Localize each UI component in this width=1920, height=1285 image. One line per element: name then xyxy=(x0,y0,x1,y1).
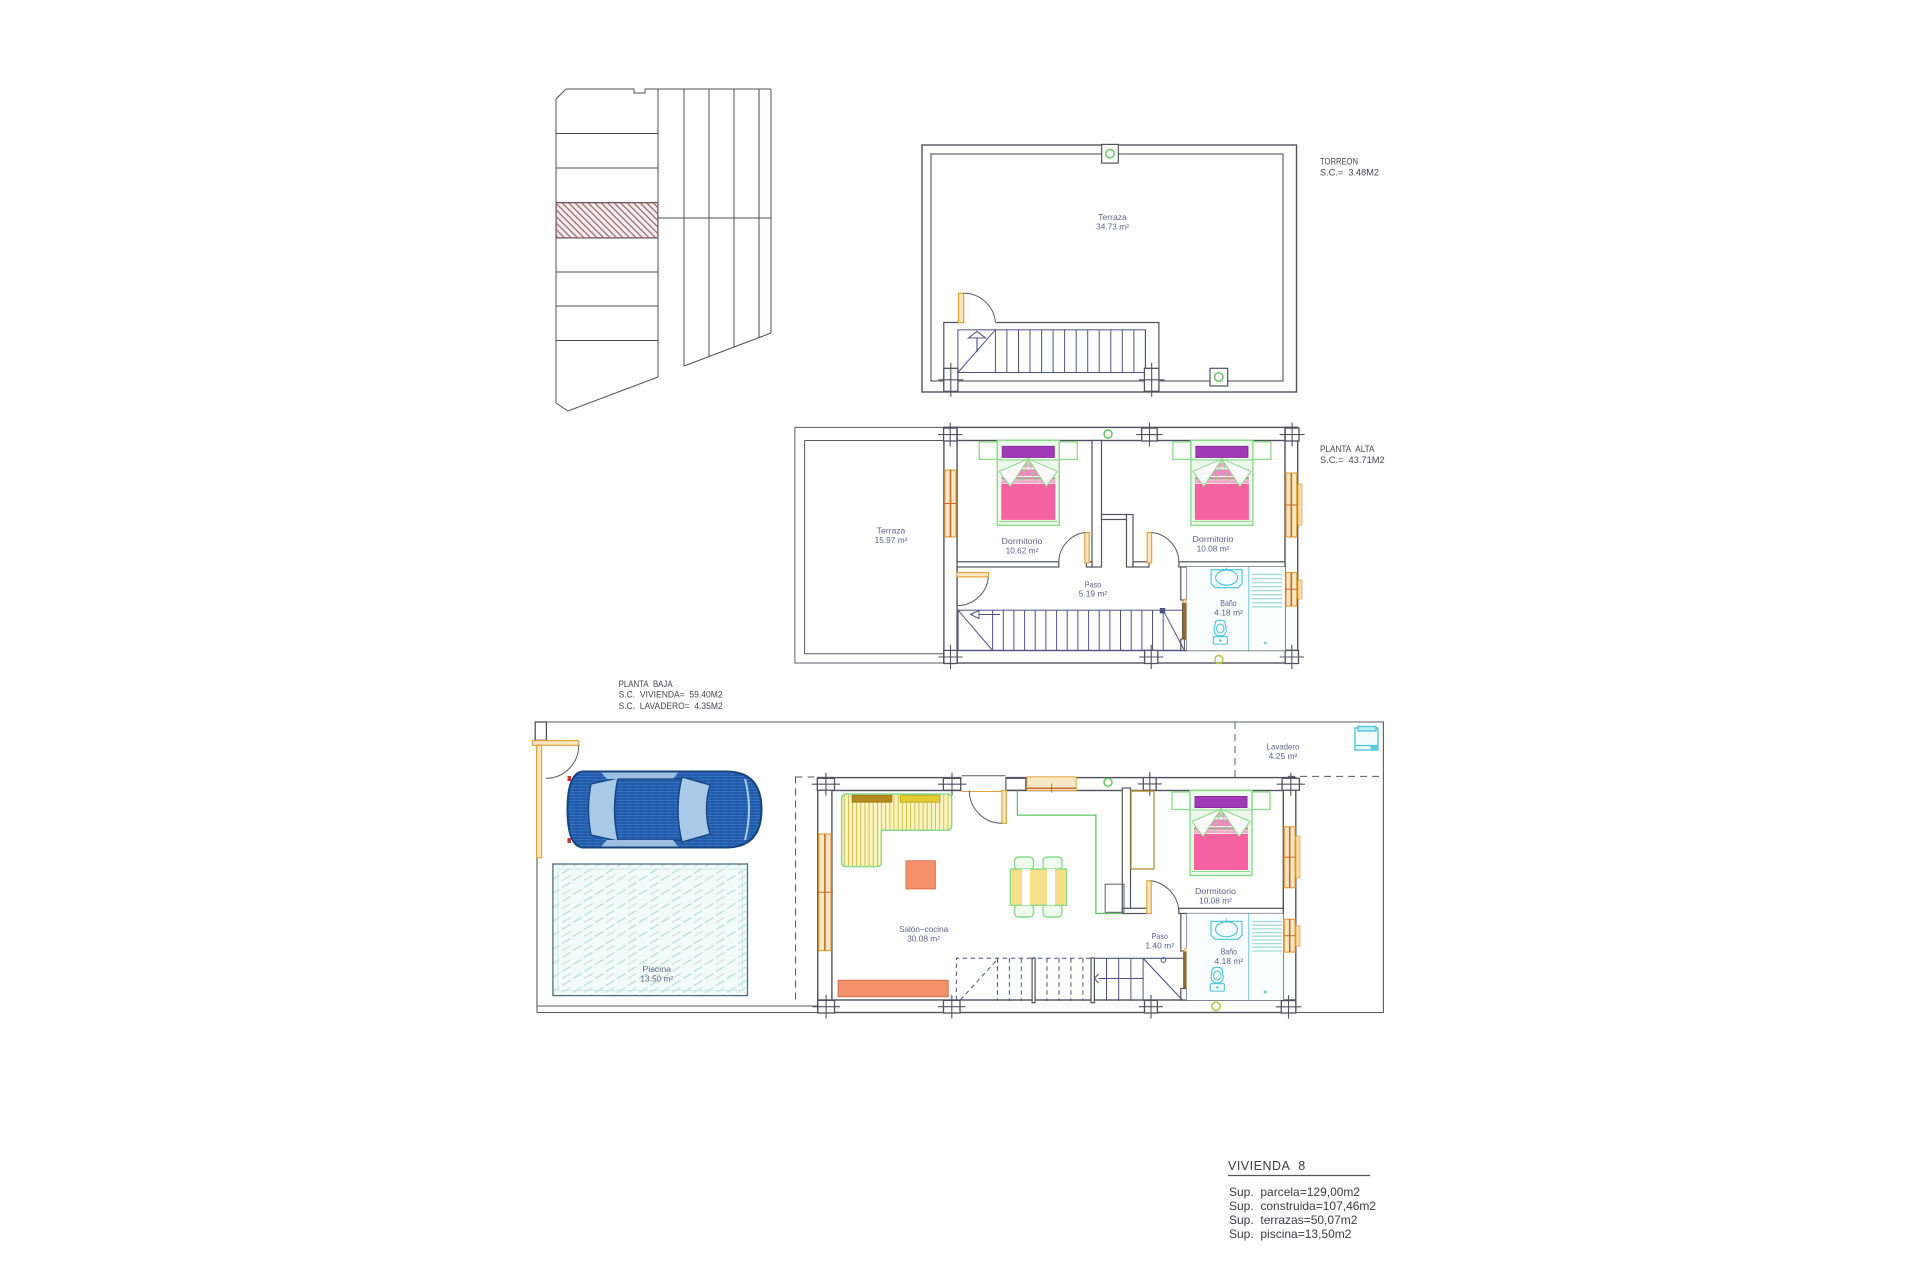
svg-text:PLANTA BAJA: PLANTA BAJA xyxy=(619,678,674,689)
svg-text:PLANTA ALTA: PLANTA ALTA xyxy=(1320,443,1375,454)
svg-text:Sup. construida=107,46m2: Sup. construida=107,46m2 xyxy=(1229,1199,1376,1213)
svg-text:10.62 m²: 10.62 m² xyxy=(1006,545,1039,555)
svg-text:S.C.= 43.71M2: S.C.= 43.71M2 xyxy=(1320,454,1385,465)
svg-text:34.73 m²: 34.73 m² xyxy=(1096,221,1129,231)
svg-text:TORREON: TORREON xyxy=(1320,155,1358,166)
svg-text:15.97 m²: 15.97 m² xyxy=(875,535,908,545)
svg-text:Sup. piscina=13,50m2: Sup. piscina=13,50m2 xyxy=(1229,1227,1352,1241)
svg-text:30.08 m²: 30.08 m² xyxy=(907,933,940,943)
svg-text:Sup. terrazas=50,07m2: Sup. terrazas=50,07m2 xyxy=(1229,1213,1358,1227)
svg-text:S.C. LAVADERO= 4.35M2: S.C. LAVADERO= 4.35M2 xyxy=(619,700,723,711)
svg-text:1.40 m²: 1.40 m² xyxy=(1145,940,1174,950)
svg-text:S.C. VIVIENDA= 59.40M2: S.C. VIVIENDA= 59.40M2 xyxy=(619,689,723,700)
svg-text:S.C.= 3.48M2: S.C.= 3.48M2 xyxy=(1320,166,1379,177)
svg-text:10.08 m²: 10.08 m² xyxy=(1197,543,1230,553)
svg-text:4.18 m²: 4.18 m² xyxy=(1214,608,1243,618)
svg-text:5.19 m²: 5.19 m² xyxy=(1079,589,1108,599)
svg-text:VIVIENDA 8: VIVIENDA 8 xyxy=(1228,1159,1306,1173)
svg-text:Sup. parcela=129,00m2: Sup. parcela=129,00m2 xyxy=(1229,1185,1360,1199)
svg-text:13.50 m²: 13.50 m² xyxy=(640,973,673,983)
svg-text:4.25 m²: 4.25 m² xyxy=(1269,751,1298,761)
svg-text:10.08 m²: 10.08 m² xyxy=(1199,895,1232,905)
svg-text:4.18 m²: 4.18 m² xyxy=(1215,956,1244,966)
